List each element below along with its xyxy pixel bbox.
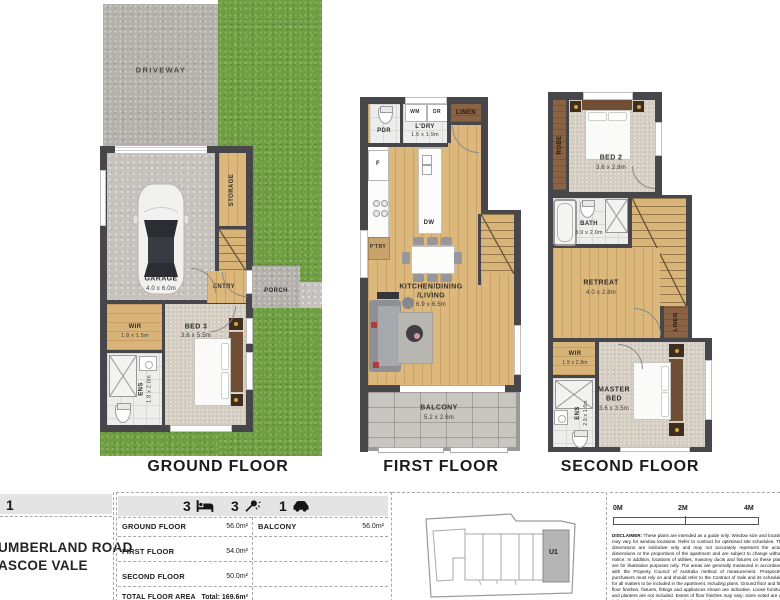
scale-bar	[613, 517, 759, 525]
area-row-ground: GROUND FLOOR 56.0m²	[122, 518, 248, 534]
scale-label-0: 0M	[613, 505, 623, 512]
bed3-pillow-2	[221, 372, 229, 399]
ldry-label: L'DRY	[415, 124, 435, 130]
dining-chair-7	[402, 252, 410, 264]
stat-cars: 1	[279, 498, 311, 514]
bed3-window-bottom	[170, 425, 232, 432]
bathroom-count: 3	[231, 498, 239, 514]
island-sink-1	[422, 155, 432, 165]
area-row-value: 50.0m²	[226, 573, 248, 580]
stat-bathrooms: 3	[231, 498, 261, 514]
ground-driveway	[103, 4, 218, 148]
porch	[252, 266, 300, 308]
kdl-label-1: KITCHEN/DINING	[399, 284, 462, 291]
ground-ens-shower	[109, 355, 137, 397]
area-row-value: 56.0m²	[226, 523, 248, 530]
cooktop-burner-4	[381, 210, 388, 217]
tv-unit	[377, 292, 399, 299]
master-dims: 3.6 x 3.5m	[599, 406, 629, 412]
garage-dims: 4.0 x 6.0m	[146, 286, 176, 292]
ground-ens-name: ENS	[139, 375, 147, 403]
kdl-dims: 6.9 x 6.5m	[416, 302, 446, 308]
shower-icon	[243, 499, 261, 513]
keyplan-svg	[393, 496, 603, 600]
scale-label-2: 2M	[678, 505, 688, 512]
master-sidetable-1	[669, 344, 684, 357]
balcony-glass-1	[378, 447, 444, 453]
first-stairs	[481, 214, 514, 274]
cooktop-burner-1	[373, 200, 380, 207]
ground-floor-title: GROUND FLOOR	[147, 458, 288, 476]
garage-label: GARAGE	[144, 276, 177, 283]
dining-chair-3	[441, 237, 452, 245]
second-wir-dims: 1.9 x 2.8m	[562, 360, 587, 366]
bed2-sidetable-2	[633, 101, 644, 112]
bed3-window-right-2	[246, 352, 253, 390]
robe-label: ROBE	[557, 136, 563, 155]
second-wir-label: WIR	[569, 351, 582, 357]
ground-ens-sink	[139, 356, 157, 371]
ground-ens-label: ENS 1.8 x 2.0m	[139, 375, 154, 403]
storage-label: STORAGE	[229, 174, 235, 206]
first-window-left	[360, 230, 368, 278]
bed2-pillow-1	[588, 112, 607, 121]
wm-label: WM	[410, 109, 420, 115]
area-row-label: GROUND FLOOR	[122, 522, 186, 531]
cooktop-burner-2	[381, 200, 388, 207]
bath-label: BATH	[580, 221, 598, 227]
first-window-top	[405, 97, 447, 104]
bed3-pillow-1	[221, 343, 229, 370]
ground-wir-dims: 1.8 x 1.5m	[121, 333, 149, 339]
scale-label-4: 4M	[744, 505, 754, 512]
keyplan-top-border	[392, 492, 604, 493]
ground-ens-dims: 1.8 x 2.0m	[146, 375, 153, 403]
second-ens-sink	[554, 410, 568, 425]
dining-chair-6	[441, 274, 452, 282]
cooktop-burner-3	[373, 210, 380, 217]
first-window-right	[514, 325, 521, 375]
balcony-rail-right	[516, 392, 520, 451]
bedroom-count: 3	[183, 498, 191, 514]
sofa-cushion-red-2	[373, 362, 379, 368]
balcony-glass-2	[450, 447, 508, 453]
dr-label: DR	[433, 109, 441, 115]
bed3-label: BED 3	[185, 324, 208, 331]
ground-stairs	[219, 229, 246, 271]
floorplan-sheet: DRIVEWAY GARAGE 4.0 x 6.0m STORAGE ENTRY…	[0, 0, 780, 600]
bed2-pillow-2	[608, 112, 627, 121]
area-row-label: SECOND FLOOR	[122, 572, 185, 581]
master-window-right	[705, 360, 712, 420]
disclaimer-heading: DISCLAIMER:	[612, 533, 642, 538]
divider-areas-columns	[252, 517, 253, 600]
address-line-2: ASCOE VALE	[0, 558, 88, 573]
pantry-label: P'TRY	[370, 244, 386, 250]
area-row-value: 54.0m²	[226, 548, 248, 555]
disclaimer-body: These plans are intended as a guide only…	[612, 533, 780, 600]
bathtub	[553, 199, 577, 246]
total-area-value: Total: 169.6m²	[201, 594, 248, 600]
fridge-label: F	[376, 161, 380, 167]
bed-icon	[195, 499, 215, 513]
retreat-label: RETREAT	[583, 280, 618, 287]
bed2-sidetable-1	[570, 101, 581, 112]
scale-bar-mid-tick	[685, 516, 686, 524]
second-floor-title: SECOND FLOOR	[561, 458, 700, 476]
retreat-dims: 4.0 x 2.8m	[586, 290, 616, 296]
area-row-label: FIRST FLOOR	[122, 547, 174, 556]
unit-number: 1	[6, 497, 14, 513]
legal-top-border	[610, 492, 780, 493]
keyplan-right-border	[606, 492, 607, 600]
bed2-dims: 3.6 x 2.8m	[596, 165, 626, 171]
master-headboard	[669, 359, 683, 421]
bed2-window-right	[655, 122, 662, 156]
garage-door	[115, 146, 207, 153]
master-pillow-2	[661, 392, 669, 417]
second-ens-dims: 2.9 x 1.6m	[583, 400, 590, 425]
wall-linen-bottom	[451, 122, 481, 125]
keyplan-unit-label: U1	[549, 549, 558, 556]
ldry-dims: 1.6 x 1.9m	[411, 132, 439, 138]
area-row-total: TOTAL FLOOR AREA Total: 169.6m²	[122, 589, 248, 600]
garage-window-left	[100, 170, 106, 226]
dining-chair-8	[454, 252, 462, 264]
second-wir-floor	[553, 342, 595, 375]
ground-wir-label: WIR	[129, 324, 142, 330]
porch-label: PORCH	[264, 288, 288, 294]
area-row-first: FIRST FLOOR 54.0m²	[122, 543, 248, 559]
master-window-bottom	[620, 447, 690, 452]
master-label-1: MASTER	[598, 387, 630, 394]
stat-bedrooms: 3	[183, 498, 215, 514]
dining-table	[411, 246, 455, 274]
bed2-window-top	[583, 92, 633, 100]
divider-row-2	[118, 561, 388, 562]
bath-dims: 3.9 x 2.0m	[575, 230, 603, 236]
master-label-2: BED	[606, 396, 622, 403]
island-sink-2	[422, 165, 432, 175]
dining-chair-4	[413, 274, 424, 282]
unit-header-bar	[0, 494, 112, 514]
second-linen-label: LINEN	[673, 313, 679, 332]
balcony-dims: 5.2 x 2.6m	[424, 415, 454, 421]
bed2-label: BED 2	[600, 155, 623, 162]
bed3-sidetable-2	[229, 394, 243, 406]
divider-row-1	[118, 536, 388, 537]
car-count: 1	[279, 498, 287, 514]
dining-chair-1	[413, 237, 424, 245]
porch-path	[300, 282, 322, 308]
dining-chair-5	[427, 274, 438, 282]
pdr-label: PDR	[377, 128, 391, 134]
balcony-label: BALCONY	[420, 405, 457, 412]
total-area-label: TOTAL FLOOR AREA	[122, 594, 196, 600]
master-sidetable-2	[669, 423, 684, 436]
sofa-cushion-red-1	[371, 322, 377, 328]
first-linen-label: LINEN	[456, 110, 476, 116]
second-ens-label: ENS 2.9 x 1.6m	[575, 400, 589, 425]
disclaimer-text: DISCLAIMER: These plans are intended as …	[612, 533, 780, 600]
address-line-1: UMBERLAND ROAD	[0, 540, 133, 555]
ground-grass-bottom	[100, 428, 218, 456]
divider-row-3	[118, 586, 388, 587]
bed2-headboard	[582, 100, 632, 110]
bed3-window-right-1	[246, 318, 253, 344]
dw-label: DW	[424, 220, 435, 226]
bed3-headboard	[229, 332, 243, 392]
area-row-balcony: BALCONY 56.0m²	[258, 518, 384, 534]
driveway-label: DRIVEWAY	[136, 66, 187, 75]
dining-chair-2	[427, 237, 438, 245]
divider-under-unit-bar	[0, 516, 112, 517]
balcony-row-value: 56.0m²	[362, 523, 384, 530]
kdl-label-2: /LIVING	[417, 293, 445, 300]
coffee-table-decor	[414, 333, 420, 339]
balcony-wall-left	[360, 385, 368, 452]
bath-shower	[605, 199, 628, 233]
master-pillow-1	[661, 366, 669, 391]
balcony-row-label: BALCONY	[258, 522, 296, 531]
car-icon	[291, 499, 311, 513]
pouf	[402, 297, 414, 309]
area-row-second: SECOND FLOOR 50.0m²	[122, 568, 248, 584]
second-ens-name: ENS	[575, 400, 583, 425]
first-floor-title: FIRST FLOOR	[383, 458, 498, 476]
